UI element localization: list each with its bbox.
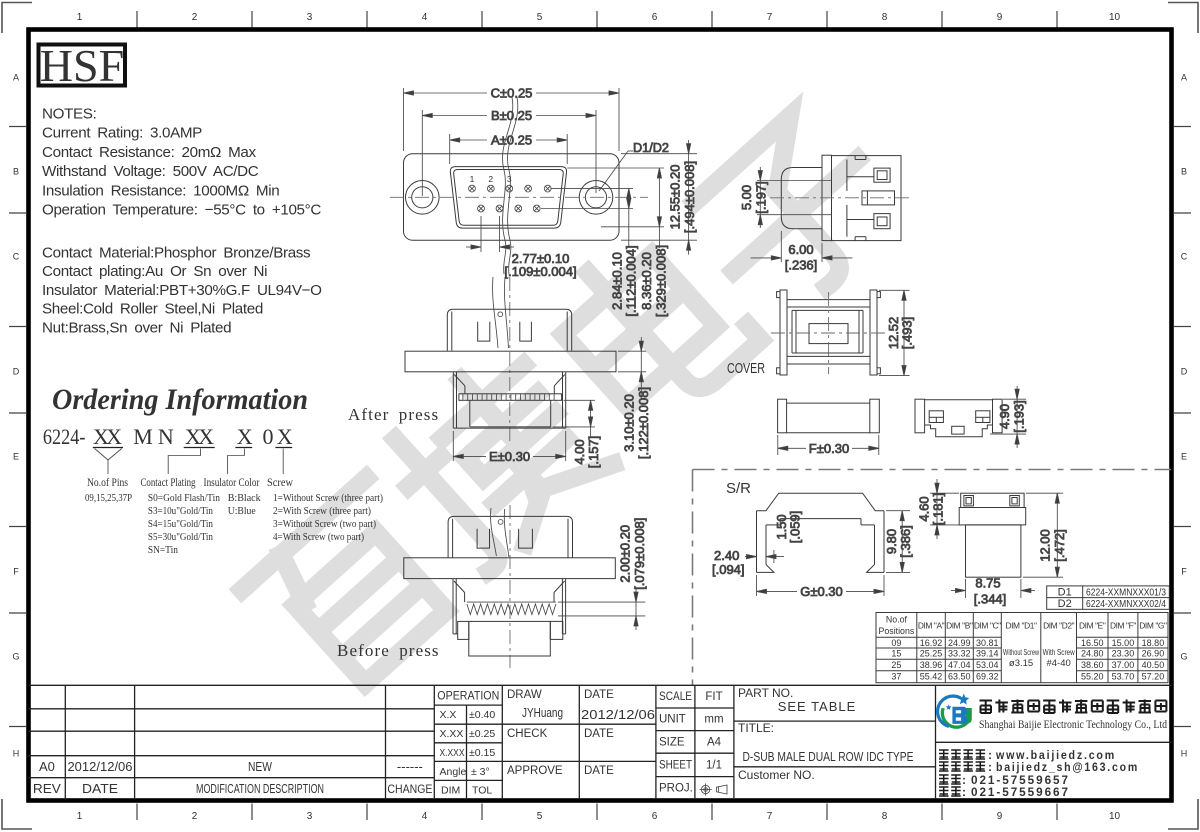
- svg-text:1: 1: [77, 811, 83, 822]
- svg-text:A0: A0: [39, 759, 55, 774]
- svg-text:G: G: [12, 652, 19, 662]
- svg-text:S3=10u"Gold/Tin: S3=10u"Gold/Tin: [148, 505, 213, 517]
- svg-text:B±0.25: B±0.25: [491, 108, 532, 123]
- svg-text:4.00: 4.00: [572, 439, 587, 464]
- svg-text:37.00: 37.00: [1112, 660, 1135, 670]
- svg-text:CHECK: CHECK: [507, 728, 548, 740]
- svg-text:2: 2: [192, 811, 198, 822]
- svg-text:C: C: [1181, 252, 1188, 262]
- svg-text:3.10±0.20: 3.10±0.20: [622, 394, 637, 452]
- svg-text:UNIT: UNIT: [659, 714, 686, 726]
- svg-text:X.XXX: X.XXX: [440, 747, 465, 759]
- svg-text:D: D: [1181, 367, 1188, 377]
- svg-text:U:Blue: U:Blue: [228, 505, 256, 517]
- svg-text:[.329±0.008]: [.329±0.008]: [654, 245, 669, 317]
- svg-text:37: 37: [891, 671, 901, 681]
- svg-text:G: G: [1180, 652, 1187, 662]
- svg-text:3: 3: [507, 174, 512, 184]
- svg-text:Angle: Angle: [440, 766, 467, 778]
- svg-text:12.55±0.20: 12.55±0.20: [668, 165, 683, 230]
- svg-text:Without Screw: Without Screw: [1003, 647, 1040, 657]
- svg-text:X.X: X.X: [440, 709, 457, 721]
- svg-text:Contact plating:Au Or Sn over: Contact plating:Au Or Sn over Ni: [42, 263, 267, 280]
- svg-text:15: 15: [891, 649, 901, 659]
- svg-text:[.109±0.004]: [.109±0.004]: [504, 264, 576, 279]
- svg-text:09: 09: [891, 638, 901, 648]
- svg-text:6: 6: [652, 811, 658, 822]
- svg-text:N: N: [158, 424, 174, 449]
- svg-text:12.00: 12.00: [1038, 529, 1053, 562]
- svg-text:Positions: Positions: [879, 626, 915, 636]
- svg-text:HSF: HSF: [40, 40, 124, 91]
- svg-text:Ordering Information: Ordering Information: [52, 383, 308, 416]
- svg-text:0: 0: [263, 424, 274, 449]
- svg-text:6224-XXMNXXX02/4: 6224-XXMNXXX02/4: [1086, 598, 1166, 610]
- svg-text:9.80: 9.80: [884, 529, 899, 554]
- svg-text:47.04: 47.04: [948, 660, 971, 670]
- svg-text:6224-XXMNXXX01/3: 6224-XXMNXXX01/3: [1086, 587, 1166, 599]
- svg-text:Screw: Screw: [267, 477, 294, 489]
- svg-text:38.60: 38.60: [1081, 660, 1104, 670]
- svg-text:4=With Screw (two part): 4=With Screw (two part): [273, 531, 364, 543]
- svg-text:CHANGE: CHANGE: [387, 782, 432, 796]
- svg-text:D: D: [13, 367, 20, 377]
- svg-text:DIM: DIM: [441, 785, 460, 797]
- svg-text:Customer NO.: Customer NO.: [738, 768, 815, 782]
- svg-text:9: 9: [997, 12, 1003, 23]
- svg-text:[.181]: [.181]: [931, 493, 946, 526]
- svg-text:DIM "D1": DIM "D1": [1005, 621, 1037, 631]
- svg-text:Insulator Color: Insulator Color: [204, 477, 260, 489]
- svg-text:16.50: 16.50: [1081, 638, 1104, 648]
- svg-text:C±0.25: C±0.25: [491, 86, 533, 101]
- svg-text:55.20: 55.20: [1081, 671, 1104, 681]
- svg-text:4.60: 4.60: [917, 496, 932, 521]
- svg-text:38.96: 38.96: [920, 660, 943, 670]
- svg-text:B: B: [1181, 167, 1187, 177]
- svg-text:DIM "F": DIM "F": [1110, 621, 1136, 631]
- svg-text:X: X: [237, 424, 253, 449]
- svg-text:2012/12/06: 2012/12/06: [67, 759, 132, 774]
- svg-text:40.50: 40.50: [1142, 660, 1165, 670]
- svg-text:Withstand Voltage: 500V AC/DC: Withstand Voltage: 500V AC/DC: [42, 163, 259, 180]
- svg-text:DRAW: DRAW: [507, 689, 542, 701]
- svg-text:Operation Temperature: −55°C t: Operation Temperature: −55°C to +105°C: [42, 202, 321, 219]
- svg-text:DIM "D2": DIM "D2": [1043, 621, 1075, 631]
- svg-text:B: B: [13, 167, 19, 177]
- svg-text:S/R: S/R: [726, 480, 751, 497]
- svg-text:A: A: [13, 73, 19, 83]
- svg-text:[.493]: [.493]: [900, 317, 915, 350]
- svg-text:Insulator Material:PBT+30%G.F: Insulator Material:PBT+30%G.F UL94V−O: [42, 282, 322, 299]
- svg-text::: :: [988, 760, 994, 774]
- svg-text:F±0.30: F±0.30: [809, 441, 849, 456]
- svg-text:55.42: 55.42: [920, 671, 943, 681]
- svg-text:DIM "E": DIM "E": [1079, 621, 1106, 631]
- svg-text:10: 10: [1109, 811, 1121, 822]
- svg-text:6224-: 6224-: [43, 424, 86, 449]
- svg-text:10: 10: [1109, 12, 1121, 23]
- svg-text:3: 3: [307, 811, 313, 822]
- svg-text:Insulation Resistance: 1000MΩ: Insulation Resistance: 1000MΩ Min: [42, 182, 279, 199]
- svg-text:9: 9: [997, 811, 1003, 822]
- svg-text:A±0.25: A±0.25: [491, 133, 532, 148]
- svg-text:DIM "C": DIM "C": [974, 621, 1001, 631]
- svg-text:5: 5: [537, 811, 543, 822]
- svg-text:± 3°: ± 3°: [471, 766, 490, 778]
- svg-text:39.14: 39.14: [976, 649, 999, 659]
- svg-text:SN=Tin: SN=Tin: [148, 544, 178, 556]
- svg-text:8.36±0.20: 8.36±0.20: [639, 252, 654, 310]
- svg-text:With Screw: With Screw: [1043, 647, 1076, 657]
- svg-text:1: 1: [77, 12, 83, 23]
- svg-text:25.25: 25.25: [920, 649, 943, 659]
- svg-text:DATE: DATE: [584, 689, 614, 701]
- svg-text:Nut:Brass,Sn over Ni Plated: Nut:Brass,Sn over Ni Plated: [42, 319, 231, 336]
- svg-text:±0.15: ±0.15: [469, 747, 495, 759]
- svg-text:2: 2: [192, 12, 198, 23]
- svg-text:8: 8: [882, 811, 888, 822]
- svg-text:8: 8: [882, 12, 888, 23]
- svg-text:[.079±0.008]: [.079±0.008]: [632, 518, 647, 590]
- svg-text:M: M: [133, 424, 153, 449]
- svg-text:[.193]: [.193]: [1012, 400, 1027, 433]
- svg-text:24.99: 24.99: [948, 638, 971, 648]
- svg-text:021-57559667: 021-57559667: [971, 785, 1070, 799]
- svg-text:After press: After press: [348, 405, 439, 424]
- svg-text:S4=15u"Gold/Tin: S4=15u"Gold/Tin: [148, 518, 213, 530]
- svg-text:A4: A4: [707, 737, 722, 749]
- svg-text:4.90: 4.90: [997, 404, 1012, 429]
- svg-text:F: F: [1181, 567, 1187, 577]
- svg-text:33.32: 33.32: [948, 649, 971, 659]
- svg-text:SHEET: SHEET: [659, 760, 692, 772]
- svg-text:3=Without Screw (two part): 3=Without Screw (two part): [273, 518, 376, 530]
- svg-text:[.112±0.004]: [.112±0.004]: [624, 245, 639, 316]
- svg-text:PROJ.: PROJ.: [659, 783, 693, 795]
- svg-text:SCALE: SCALE: [659, 691, 692, 703]
- svg-text:No.of: No.of: [886, 615, 908, 625]
- svg-text:[.236]: [.236]: [785, 258, 818, 273]
- svg-text:H: H: [1181, 749, 1188, 759]
- svg-text:TITLE:: TITLE:: [738, 721, 774, 735]
- svg-text:G±0.30: G±0.30: [800, 584, 843, 599]
- svg-text:57.20: 57.20: [1142, 671, 1165, 681]
- svg-text:REV: REV: [33, 781, 61, 796]
- svg-text:DIM "A": DIM "A": [918, 621, 945, 631]
- svg-text:16.92: 16.92: [920, 638, 943, 648]
- svg-text:23.30: 23.30: [1112, 649, 1135, 659]
- svg-text:FIT: FIT: [705, 691, 722, 703]
- svg-text:25: 25: [891, 660, 901, 670]
- svg-text:E: E: [1181, 452, 1187, 462]
- svg-text:1: 1: [470, 174, 475, 184]
- svg-text:DIM "G": DIM "G": [1139, 621, 1167, 631]
- svg-text:Before press: Before press: [337, 641, 440, 660]
- svg-text:2.84±0.10: 2.84±0.10: [610, 252, 625, 310]
- svg-text:Contact Resistance: 20mΩ Max: Contact Resistance: 20mΩ Max: [42, 144, 256, 161]
- svg-text:69.32: 69.32: [976, 671, 999, 681]
- svg-text:[.059]: [.059]: [788, 511, 803, 544]
- svg-text:ø3.15: ø3.15: [1009, 658, 1033, 669]
- svg-text:Contact Plating: Contact Plating: [141, 477, 196, 489]
- svg-text:H: H: [13, 749, 20, 759]
- svg-text::: :: [962, 785, 968, 799]
- svg-text:DATE: DATE: [584, 765, 614, 777]
- svg-text:SIZE: SIZE: [659, 737, 685, 749]
- svg-text:[.197]: [.197]: [754, 181, 769, 214]
- svg-text:[.472]: [.472]: [1052, 529, 1067, 562]
- svg-text:Sheel:Cold Roller Steel,Ni Pla: Sheel:Cold Roller Steel,Ni Plated: [42, 301, 263, 318]
- svg-text:D1/D2: D1/D2: [633, 140, 669, 155]
- svg-text:53.70: 53.70: [1112, 671, 1135, 681]
- svg-text:F: F: [13, 567, 19, 577]
- svg-text:D1: D1: [1058, 587, 1072, 599]
- svg-text:XX: XX: [93, 424, 122, 449]
- svg-text:PART NO.: PART NO.: [738, 686, 793, 700]
- svg-text:3: 3: [307, 12, 313, 23]
- svg-text:53.04: 53.04: [976, 660, 999, 670]
- svg-text:63.50: 63.50: [948, 671, 971, 681]
- svg-text:B:Black: B:Black: [228, 492, 261, 504]
- svg-text:X: X: [277, 424, 293, 449]
- svg-text:5: 5: [537, 12, 543, 23]
- svg-text:mm: mm: [704, 714, 723, 726]
- svg-text:8.75: 8.75: [975, 576, 1000, 591]
- svg-text:#4-40: #4-40: [1046, 658, 1070, 669]
- svg-text:±0.25: ±0.25: [469, 728, 495, 740]
- svg-text:D-SUB MALE DUAL ROW IDC TYPE: D-SUB MALE DUAL ROW IDC TYPE: [743, 749, 914, 764]
- svg-text:18.80: 18.80: [1142, 638, 1165, 648]
- svg-text:[.386]: [.386]: [898, 525, 913, 558]
- svg-text:7: 7: [767, 811, 773, 822]
- svg-text:MODIFICATION DESCRIPTION: MODIFICATION DESCRIPTION: [196, 781, 324, 796]
- svg-text:OPERATION: OPERATION: [437, 691, 499, 703]
- svg-text:[.122±0.008]: [.122±0.008]: [636, 387, 651, 459]
- svg-text:4: 4: [422, 12, 428, 23]
- svg-text:baijiedz_sh@163.com: baijiedz_sh@163.com: [996, 760, 1139, 774]
- svg-text:XX: XX: [185, 424, 214, 449]
- svg-text:A: A: [1181, 73, 1187, 83]
- svg-text:15.00: 15.00: [1112, 638, 1135, 648]
- svg-text:APPROVE: APPROVE: [507, 765, 563, 777]
- svg-text:No.of Pins: No.of Pins: [87, 477, 128, 489]
- svg-text:6: 6: [652, 12, 658, 23]
- svg-text:7: 7: [767, 12, 773, 23]
- svg-text:6.00: 6.00: [788, 242, 813, 257]
- svg-text:2012/12/06: 2012/12/06: [581, 707, 655, 722]
- svg-text:DATE: DATE: [584, 728, 614, 740]
- svg-text:S0=Gold Flash/Tin: S0=Gold Flash/Tin: [148, 492, 220, 504]
- svg-text:X.XX: X.XX: [440, 728, 464, 740]
- svg-text:2: 2: [488, 174, 493, 184]
- svg-text:NOTES:: NOTES:: [42, 106, 96, 123]
- svg-text:4: 4: [422, 811, 428, 822]
- svg-text:TOL: TOL: [472, 785, 492, 797]
- svg-text:NEW: NEW: [248, 759, 273, 774]
- svg-text:2=With Screw (three part): 2=With Screw (three part): [273, 505, 371, 517]
- svg-text:2.00±0.20: 2.00±0.20: [618, 525, 633, 583]
- svg-text:JYHuang: JYHuang: [522, 706, 563, 720]
- svg-text:26.90: 26.90: [1142, 649, 1165, 659]
- svg-text:[.094]: [.094]: [712, 562, 745, 577]
- svg-text:09,15,25,37P: 09,15,25,37P: [85, 492, 132, 504]
- svg-text:[.494±0.008]: [.494±0.008]: [682, 161, 697, 233]
- svg-text:E: E: [13, 452, 19, 462]
- svg-text:COVER: COVER: [727, 361, 765, 377]
- svg-text:[.344]: [.344]: [974, 592, 1007, 607]
- svg-text:------: ------: [397, 759, 423, 774]
- svg-text:DATE: DATE: [82, 781, 118, 796]
- svg-text:Contact Material:Phosphor Bron: Contact Material:Phosphor Bronze/Brass: [42, 245, 311, 262]
- svg-text:E±0.30: E±0.30: [489, 449, 530, 464]
- svg-text:[.157]: [.157]: [586, 436, 601, 469]
- svg-text:5.00: 5.00: [739, 185, 754, 210]
- svg-text:24.80: 24.80: [1081, 649, 1104, 659]
- svg-text:SEE TABLE: SEE TABLE: [778, 699, 857, 714]
- svg-text:1=Without Screw (three part): 1=Without Screw (three part): [273, 492, 383, 504]
- svg-text:Shanghai Baijie Electronic Tec: Shanghai Baijie Electronic Technology Co…: [979, 717, 1167, 731]
- svg-text:S5=30u"Gold/Tin: S5=30u"Gold/Tin: [148, 531, 213, 543]
- svg-text:DIM "B": DIM "B": [946, 621, 973, 631]
- svg-text:C: C: [13, 252, 20, 262]
- svg-text:2.40: 2.40: [714, 548, 739, 563]
- svg-text:Current Rating: 3.0AMP: Current Rating: 3.0AMP: [42, 125, 202, 142]
- svg-text:30.81: 30.81: [976, 638, 999, 648]
- svg-text:±0.40: ±0.40: [469, 709, 495, 721]
- svg-text:1/1: 1/1: [706, 760, 722, 772]
- svg-text:D2: D2: [1058, 598, 1072, 610]
